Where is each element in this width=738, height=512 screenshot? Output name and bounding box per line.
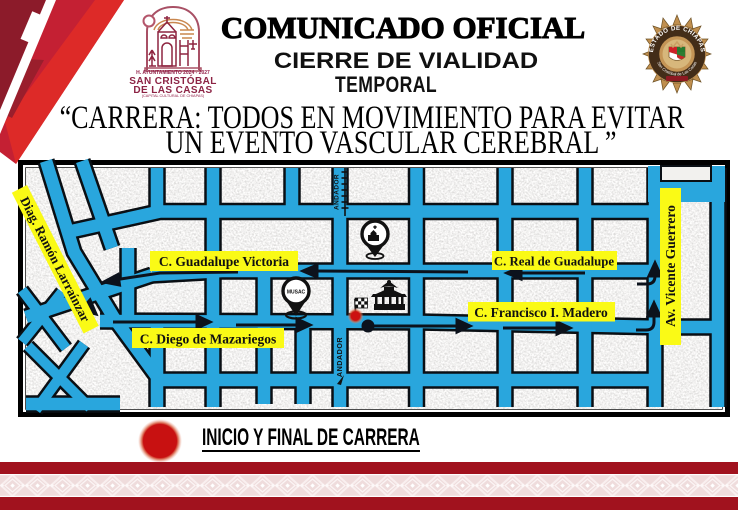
svg-text:C. Diego de Mazariegos: C. Diego de Mazariegos [140, 332, 276, 347]
svg-text:MUSAC: MUSAC [287, 290, 306, 296]
svg-text:C. Francisco I. Madero: C. Francisco I. Madero [474, 305, 608, 320]
svg-text:ANDADOR: ANDADOR [335, 337, 344, 378]
svg-text:C. Guadalupe Victoria: C. Guadalupe Victoria [159, 254, 289, 269]
svg-text:C. Real de Guadalupe: C. Real de Guadalupe [494, 255, 614, 269]
svg-text:Av. Vicente Guerrero: Av. Vicente Guerrero [663, 205, 678, 327]
svg-text:ANDADOR: ANDADOR [334, 174, 341, 210]
